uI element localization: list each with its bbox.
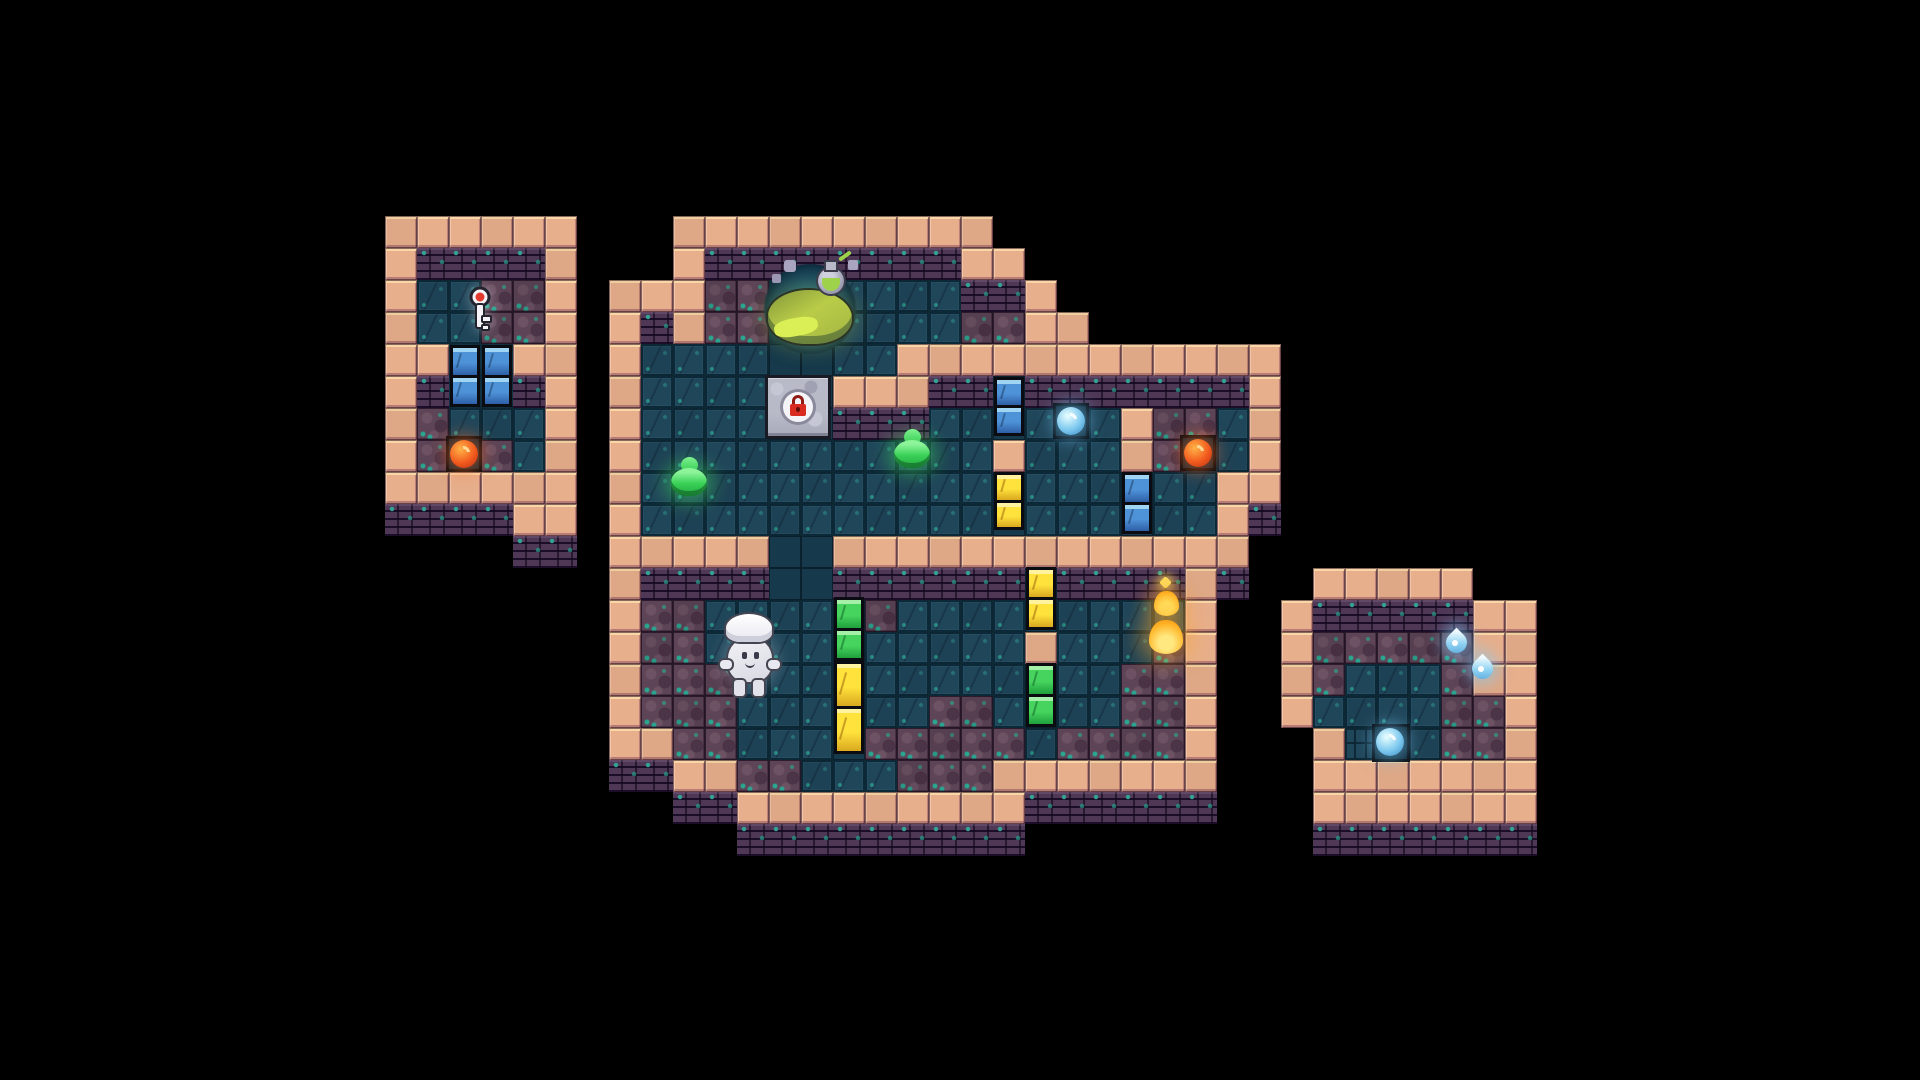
- floor-tile: [929, 280, 961, 312]
- wall-tile: [865, 536, 897, 568]
- wall-tile: [897, 792, 929, 824]
- wall-tile: [705, 760, 737, 792]
- dirt-tile: [673, 696, 705, 728]
- floor-tile: [737, 440, 769, 472]
- dirt-tile: [1441, 728, 1473, 760]
- wall-face-tile: [897, 568, 929, 600]
- yellow-door-east[interactable]: [1026, 567, 1056, 630]
- wall-tile: [1281, 696, 1313, 728]
- player-leg: [734, 680, 745, 696]
- yellow-door-segment: [1029, 597, 1053, 627]
- wall-tile: [1249, 344, 1281, 376]
- player-character[interactable]: [720, 614, 780, 698]
- wall-tile: [385, 248, 417, 280]
- wall-tile: [513, 344, 545, 376]
- floor-tile: [737, 472, 769, 504]
- wall-face-tile: [961, 280, 993, 312]
- wall-face-tile: [801, 824, 833, 856]
- wall-tile: [897, 376, 929, 408]
- dirt-tile: [1121, 664, 1153, 696]
- floor-tile: [769, 728, 801, 760]
- wall-tile: [1025, 536, 1057, 568]
- floor-tile: [993, 696, 1025, 728]
- wall-face-tile: [1057, 792, 1089, 824]
- floor-tile: [513, 408, 545, 440]
- wall-tile: [545, 408, 577, 440]
- wall-tile: [673, 280, 705, 312]
- blue-door-segment: [453, 375, 477, 405]
- wall-face-tile: [929, 824, 961, 856]
- cauldron-with-potion[interactable]: [760, 260, 860, 356]
- wall-tile: [545, 280, 577, 312]
- flame-spark: [1159, 576, 1172, 589]
- player-eye: [742, 652, 747, 659]
- dirt-tile: [865, 600, 897, 632]
- floor-tile: [1313, 696, 1345, 728]
- dirt-tile: [769, 760, 801, 792]
- game-viewport: [0, 0, 1920, 1080]
- wall-tile: [993, 344, 1025, 376]
- dirt-tile: [1121, 696, 1153, 728]
- wall-tile: [1057, 760, 1089, 792]
- wall-face-tile: [545, 536, 577, 568]
- dirt-tile: [1153, 664, 1185, 696]
- wall-tile: [1057, 344, 1089, 376]
- wall-tile: [609, 376, 641, 408]
- wall-tile: [1185, 536, 1217, 568]
- floor-tile: [705, 504, 737, 536]
- floor-tile: [865, 664, 897, 696]
- dirt-tile: [961, 728, 993, 760]
- floor-tile: [897, 632, 929, 664]
- wall-face-tile: [1121, 792, 1153, 824]
- locked-stone-door[interactable]: [765, 375, 831, 439]
- dirt-tile: [705, 312, 737, 344]
- floor-tile: [737, 504, 769, 536]
- floor-tile: [769, 472, 801, 504]
- green-door-east[interactable]: [1026, 663, 1056, 727]
- yellow-door-mid[interactable]: [994, 472, 1024, 530]
- green-slime[interactable]: [666, 452, 714, 504]
- floor-tile: [961, 440, 993, 472]
- wall-tile: [833, 376, 865, 408]
- wall-face-tile: [961, 376, 993, 408]
- floor-tile: [897, 312, 929, 344]
- wall-face-tile: [1153, 792, 1185, 824]
- wall-face-tile: [705, 568, 737, 600]
- smoke-puff: [772, 274, 781, 283]
- wall-tile: [1185, 728, 1217, 760]
- wall-tile: [385, 472, 417, 504]
- floor-tile: [833, 504, 865, 536]
- yellow-door-segment: [997, 475, 1021, 500]
- key-item[interactable]: [463, 286, 497, 334]
- wall-face-tile: [705, 792, 737, 824]
- floor-tile: [897, 504, 929, 536]
- wall-tile: [1249, 408, 1281, 440]
- floor-tile: [641, 376, 673, 408]
- wall-tile: [1505, 664, 1537, 696]
- wall-tile: [1505, 728, 1537, 760]
- wall-tile: [1217, 536, 1249, 568]
- wall-face-tile: [1313, 824, 1345, 856]
- floor-tile: [1089, 664, 1121, 696]
- dirt-tile: [993, 728, 1025, 760]
- wall-tile: [833, 536, 865, 568]
- green-door-segment: [837, 600, 861, 628]
- floor-tile: [897, 472, 929, 504]
- wall-tile: [641, 728, 673, 760]
- wall-tile: [1505, 792, 1537, 824]
- floor-tile: [1089, 472, 1121, 504]
- wall-face-tile: [641, 760, 673, 792]
- dirt-tile: [929, 760, 961, 792]
- wall-face-tile: [449, 248, 481, 280]
- dirt-tile: [417, 440, 449, 472]
- wall-tile: [385, 312, 417, 344]
- wall-tile: [449, 216, 481, 248]
- floor-tile: [737, 696, 769, 728]
- wall-face-tile: [513, 536, 545, 568]
- floor-tile: [1185, 472, 1217, 504]
- wall-face-tile: [385, 504, 417, 536]
- wall-tile: [545, 376, 577, 408]
- wall-tile: [609, 568, 641, 600]
- dirt-tile: [705, 696, 737, 728]
- floor-tile: [801, 760, 833, 792]
- floor-tile: [1089, 440, 1121, 472]
- wall-tile: [1089, 760, 1121, 792]
- wall-face-tile: [417, 248, 449, 280]
- floor-tile: [1089, 408, 1121, 440]
- wall-tile: [1025, 312, 1057, 344]
- wall-tile: [609, 600, 641, 632]
- wall-tile: [1121, 760, 1153, 792]
- wall-tile: [705, 536, 737, 568]
- floor-tile: [1025, 728, 1057, 760]
- floor-tile: [1377, 664, 1409, 696]
- wall-tile: [1185, 760, 1217, 792]
- floor-tile: [865, 504, 897, 536]
- floor-tile: [417, 280, 449, 312]
- floor-tile: [961, 664, 993, 696]
- dirt-tile: [1313, 664, 1345, 696]
- wall-tile: [1249, 472, 1281, 504]
- wall-face-tile: [1441, 824, 1473, 856]
- wall-face-tile: [1313, 600, 1345, 632]
- floor-tile: [737, 728, 769, 760]
- wall-tile: [1473, 600, 1505, 632]
- wall-tile: [897, 536, 929, 568]
- dirt-tile: [929, 696, 961, 728]
- left-room-gate-left[interactable]: [450, 345, 480, 407]
- wall-face-tile: [1057, 568, 1089, 600]
- dirt-tile: [513, 280, 545, 312]
- wall-tile: [1057, 312, 1089, 344]
- floor-tile: [993, 600, 1025, 632]
- floor-tile: [641, 408, 673, 440]
- wall-tile: [1281, 600, 1313, 632]
- wall-tile: [385, 344, 417, 376]
- wall-face-tile: [417, 376, 449, 408]
- wall-tile: [609, 472, 641, 504]
- wall-tile: [833, 792, 865, 824]
- wall-face-tile: [1345, 824, 1377, 856]
- blue-orb-item[interactable]: [1372, 724, 1410, 762]
- red-orb-item[interactable]: [446, 436, 482, 472]
- wall-tile: [1409, 760, 1441, 792]
- dirt-tile: [1473, 728, 1505, 760]
- dirt-tile: [417, 408, 449, 440]
- wall-face-tile: [961, 568, 993, 600]
- drop-highlight: [1452, 640, 1458, 646]
- wall-face-tile: [833, 568, 865, 600]
- yellow-door-segment: [837, 664, 861, 706]
- blue-orb-item[interactable]: [1053, 403, 1089, 439]
- wall-tile: [385, 376, 417, 408]
- floor-tile: [865, 344, 897, 376]
- wall-tile: [1409, 792, 1441, 824]
- floor-tile: [705, 376, 737, 408]
- dirt-tile: [1153, 696, 1185, 728]
- wall-tile: [449, 472, 481, 504]
- wall-tile: [1377, 760, 1409, 792]
- floor-tile: [801, 664, 833, 696]
- wall-tile: [609, 408, 641, 440]
- wall-tile: [1057, 536, 1089, 568]
- player-body: [728, 638, 772, 682]
- floor-tile: [929, 600, 961, 632]
- wall-tile: [1025, 280, 1057, 312]
- dirt-tile: [961, 760, 993, 792]
- floor-tile: [961, 408, 993, 440]
- floor-tile: [1025, 504, 1057, 536]
- wall-face-tile: [705, 248, 737, 280]
- left-room-gate-right[interactable]: [482, 345, 512, 407]
- floor-tile: [929, 472, 961, 504]
- dirt-tile: [929, 728, 961, 760]
- wall-face-tile: [929, 248, 961, 280]
- wall-tile: [1313, 568, 1345, 600]
- wall-face-tile: [865, 248, 897, 280]
- wall-tile: [609, 280, 641, 312]
- floor-tile: [929, 408, 961, 440]
- keyhole-icon: [796, 407, 800, 412]
- wall-tile: [833, 216, 865, 248]
- floor-tile: [929, 440, 961, 472]
- wall-tile: [1473, 760, 1505, 792]
- floor-dark-tile: [801, 536, 833, 568]
- floor-tile: [993, 664, 1025, 696]
- floor-dark-tile: [769, 536, 801, 568]
- floor-tile: [1409, 728, 1441, 760]
- wall-tile: [1121, 440, 1153, 472]
- wall-tile: [641, 280, 673, 312]
- wall-tile: [1121, 408, 1153, 440]
- blue-door-segment: [485, 375, 509, 405]
- wall-tile: [385, 216, 417, 248]
- wall-tile: [1345, 568, 1377, 600]
- wall-tile: [993, 760, 1025, 792]
- wall-face-tile: [993, 280, 1025, 312]
- padlock-shackle-icon: [792, 395, 804, 404]
- green-door-segment: [1029, 694, 1053, 725]
- dirt-tile: [737, 760, 769, 792]
- dirt-tile: [513, 312, 545, 344]
- green-door-west[interactable]: [834, 597, 864, 661]
- wall-tile: [1409, 568, 1441, 600]
- floor-tile: [865, 280, 897, 312]
- green-door-segment: [837, 628, 861, 659]
- wall-face-tile: [1217, 376, 1249, 408]
- wall-face-tile: [641, 312, 673, 344]
- wall-face-tile: [1089, 376, 1121, 408]
- floor-tile: [1057, 696, 1089, 728]
- floor-tile: [1057, 504, 1089, 536]
- flame-upper: [1154, 591, 1179, 616]
- wall-tile: [1121, 536, 1153, 568]
- floor-tile: [1057, 632, 1089, 664]
- wall-face-tile: [417, 504, 449, 536]
- wall-tile: [961, 248, 993, 280]
- wall-tile: [1377, 568, 1409, 600]
- dirt-tile: [897, 760, 929, 792]
- floor-tile: [897, 280, 929, 312]
- player-hat: [726, 614, 772, 642]
- blue-door-segment: [485, 348, 509, 375]
- green-slime[interactable]: [889, 424, 933, 474]
- wall-tile: [961, 216, 993, 248]
- wall-tile: [609, 344, 641, 376]
- dirt-tile: [641, 632, 673, 664]
- wall-tile: [417, 344, 449, 376]
- wall-face-tile: [929, 568, 961, 600]
- wall-tile: [417, 216, 449, 248]
- floor-tile: [993, 632, 1025, 664]
- wall-tile: [1153, 760, 1185, 792]
- dirt-tile: [1089, 728, 1121, 760]
- wall-tile: [513, 504, 545, 536]
- dirt-tile: [481, 440, 513, 472]
- floor-tile: [1153, 504, 1185, 536]
- water-drop[interactable]: [1468, 648, 1502, 694]
- floor-tile: [1057, 600, 1089, 632]
- yellow-door-west[interactable]: [834, 661, 864, 754]
- blue-door-segment: [997, 405, 1021, 433]
- floor-tile: [801, 440, 833, 472]
- wall-tile: [545, 472, 577, 504]
- yellow-door-segment: [1029, 570, 1053, 597]
- floor-tile: [833, 472, 865, 504]
- wall-face-tile: [513, 248, 545, 280]
- wall-tile: [705, 216, 737, 248]
- floor-tile: [1025, 472, 1057, 504]
- green-door-segment: [1029, 666, 1053, 694]
- blue-door-upper[interactable]: [994, 377, 1024, 436]
- wall-tile: [481, 216, 513, 248]
- floor-tile: [641, 504, 673, 536]
- wall-face-tile: [1153, 376, 1185, 408]
- wall-face-tile: [1249, 504, 1281, 536]
- wall-face-tile: [1089, 792, 1121, 824]
- floor-tile: [1409, 664, 1441, 696]
- wall-tile: [1249, 376, 1281, 408]
- wall-tile: [1441, 792, 1473, 824]
- red-orb-item[interactable]: [1180, 435, 1216, 471]
- wall-face-tile: [1345, 600, 1377, 632]
- wall-tile: [993, 792, 1025, 824]
- floor-tile: [929, 632, 961, 664]
- floor-tile: [769, 440, 801, 472]
- floor-dark-tile: [769, 568, 801, 600]
- floor-tile: [865, 312, 897, 344]
- wall-face-tile: [673, 568, 705, 600]
- wall-tile: [513, 472, 545, 504]
- wall-tile: [673, 536, 705, 568]
- wall-face-tile: [993, 568, 1025, 600]
- wall-tile: [609, 504, 641, 536]
- wall-tile: [1153, 344, 1185, 376]
- floor-tile: [929, 312, 961, 344]
- wall-tile: [1153, 536, 1185, 568]
- flame-lower: [1149, 620, 1183, 654]
- dirt-tile: [1377, 632, 1409, 664]
- dirt-tile: [865, 728, 897, 760]
- wall-tile: [545, 440, 577, 472]
- wall-face-tile: [1185, 792, 1217, 824]
- floor-tile: [481, 408, 513, 440]
- wall-tile: [1025, 632, 1057, 664]
- wall-tile: [1185, 344, 1217, 376]
- wall-face-tile: [1025, 792, 1057, 824]
- wall-face-tile: [481, 248, 513, 280]
- wall-face-tile: [1089, 568, 1121, 600]
- wall-tile: [481, 472, 513, 504]
- dirt-tile: [961, 696, 993, 728]
- wall-tile: [1505, 696, 1537, 728]
- wall-tile: [1281, 664, 1313, 696]
- dirt-tile: [705, 280, 737, 312]
- floor-tile: [929, 504, 961, 536]
- blue-door-right[interactable]: [1122, 472, 1152, 534]
- wall-tile: [545, 504, 577, 536]
- floor-tile: [673, 376, 705, 408]
- wall-face-tile: [1121, 376, 1153, 408]
- wall-face-tile: [737, 824, 769, 856]
- dirt-tile: [641, 696, 673, 728]
- wall-tile: [929, 792, 961, 824]
- floor-tile: [1057, 440, 1089, 472]
- wall-tile: [1089, 344, 1121, 376]
- wall-face-tile: [1217, 568, 1249, 600]
- player-eye: [754, 652, 759, 659]
- wall-tile: [1185, 664, 1217, 696]
- wall-tile: [1345, 760, 1377, 792]
- flame-spirit[interactable]: [1144, 578, 1190, 660]
- wall-tile: [1345, 792, 1377, 824]
- wall-face-tile: [673, 792, 705, 824]
- dirt-tile: [1313, 632, 1345, 664]
- floor-tile: [833, 440, 865, 472]
- wall-face-tile: [961, 824, 993, 856]
- wall-tile: [769, 216, 801, 248]
- wall-tile: [545, 312, 577, 344]
- wall-face-tile: [609, 760, 641, 792]
- floor-tile: [1185, 504, 1217, 536]
- drop-highlight: [1478, 666, 1484, 672]
- floor-tile: [865, 632, 897, 664]
- wall-tile: [993, 248, 1025, 280]
